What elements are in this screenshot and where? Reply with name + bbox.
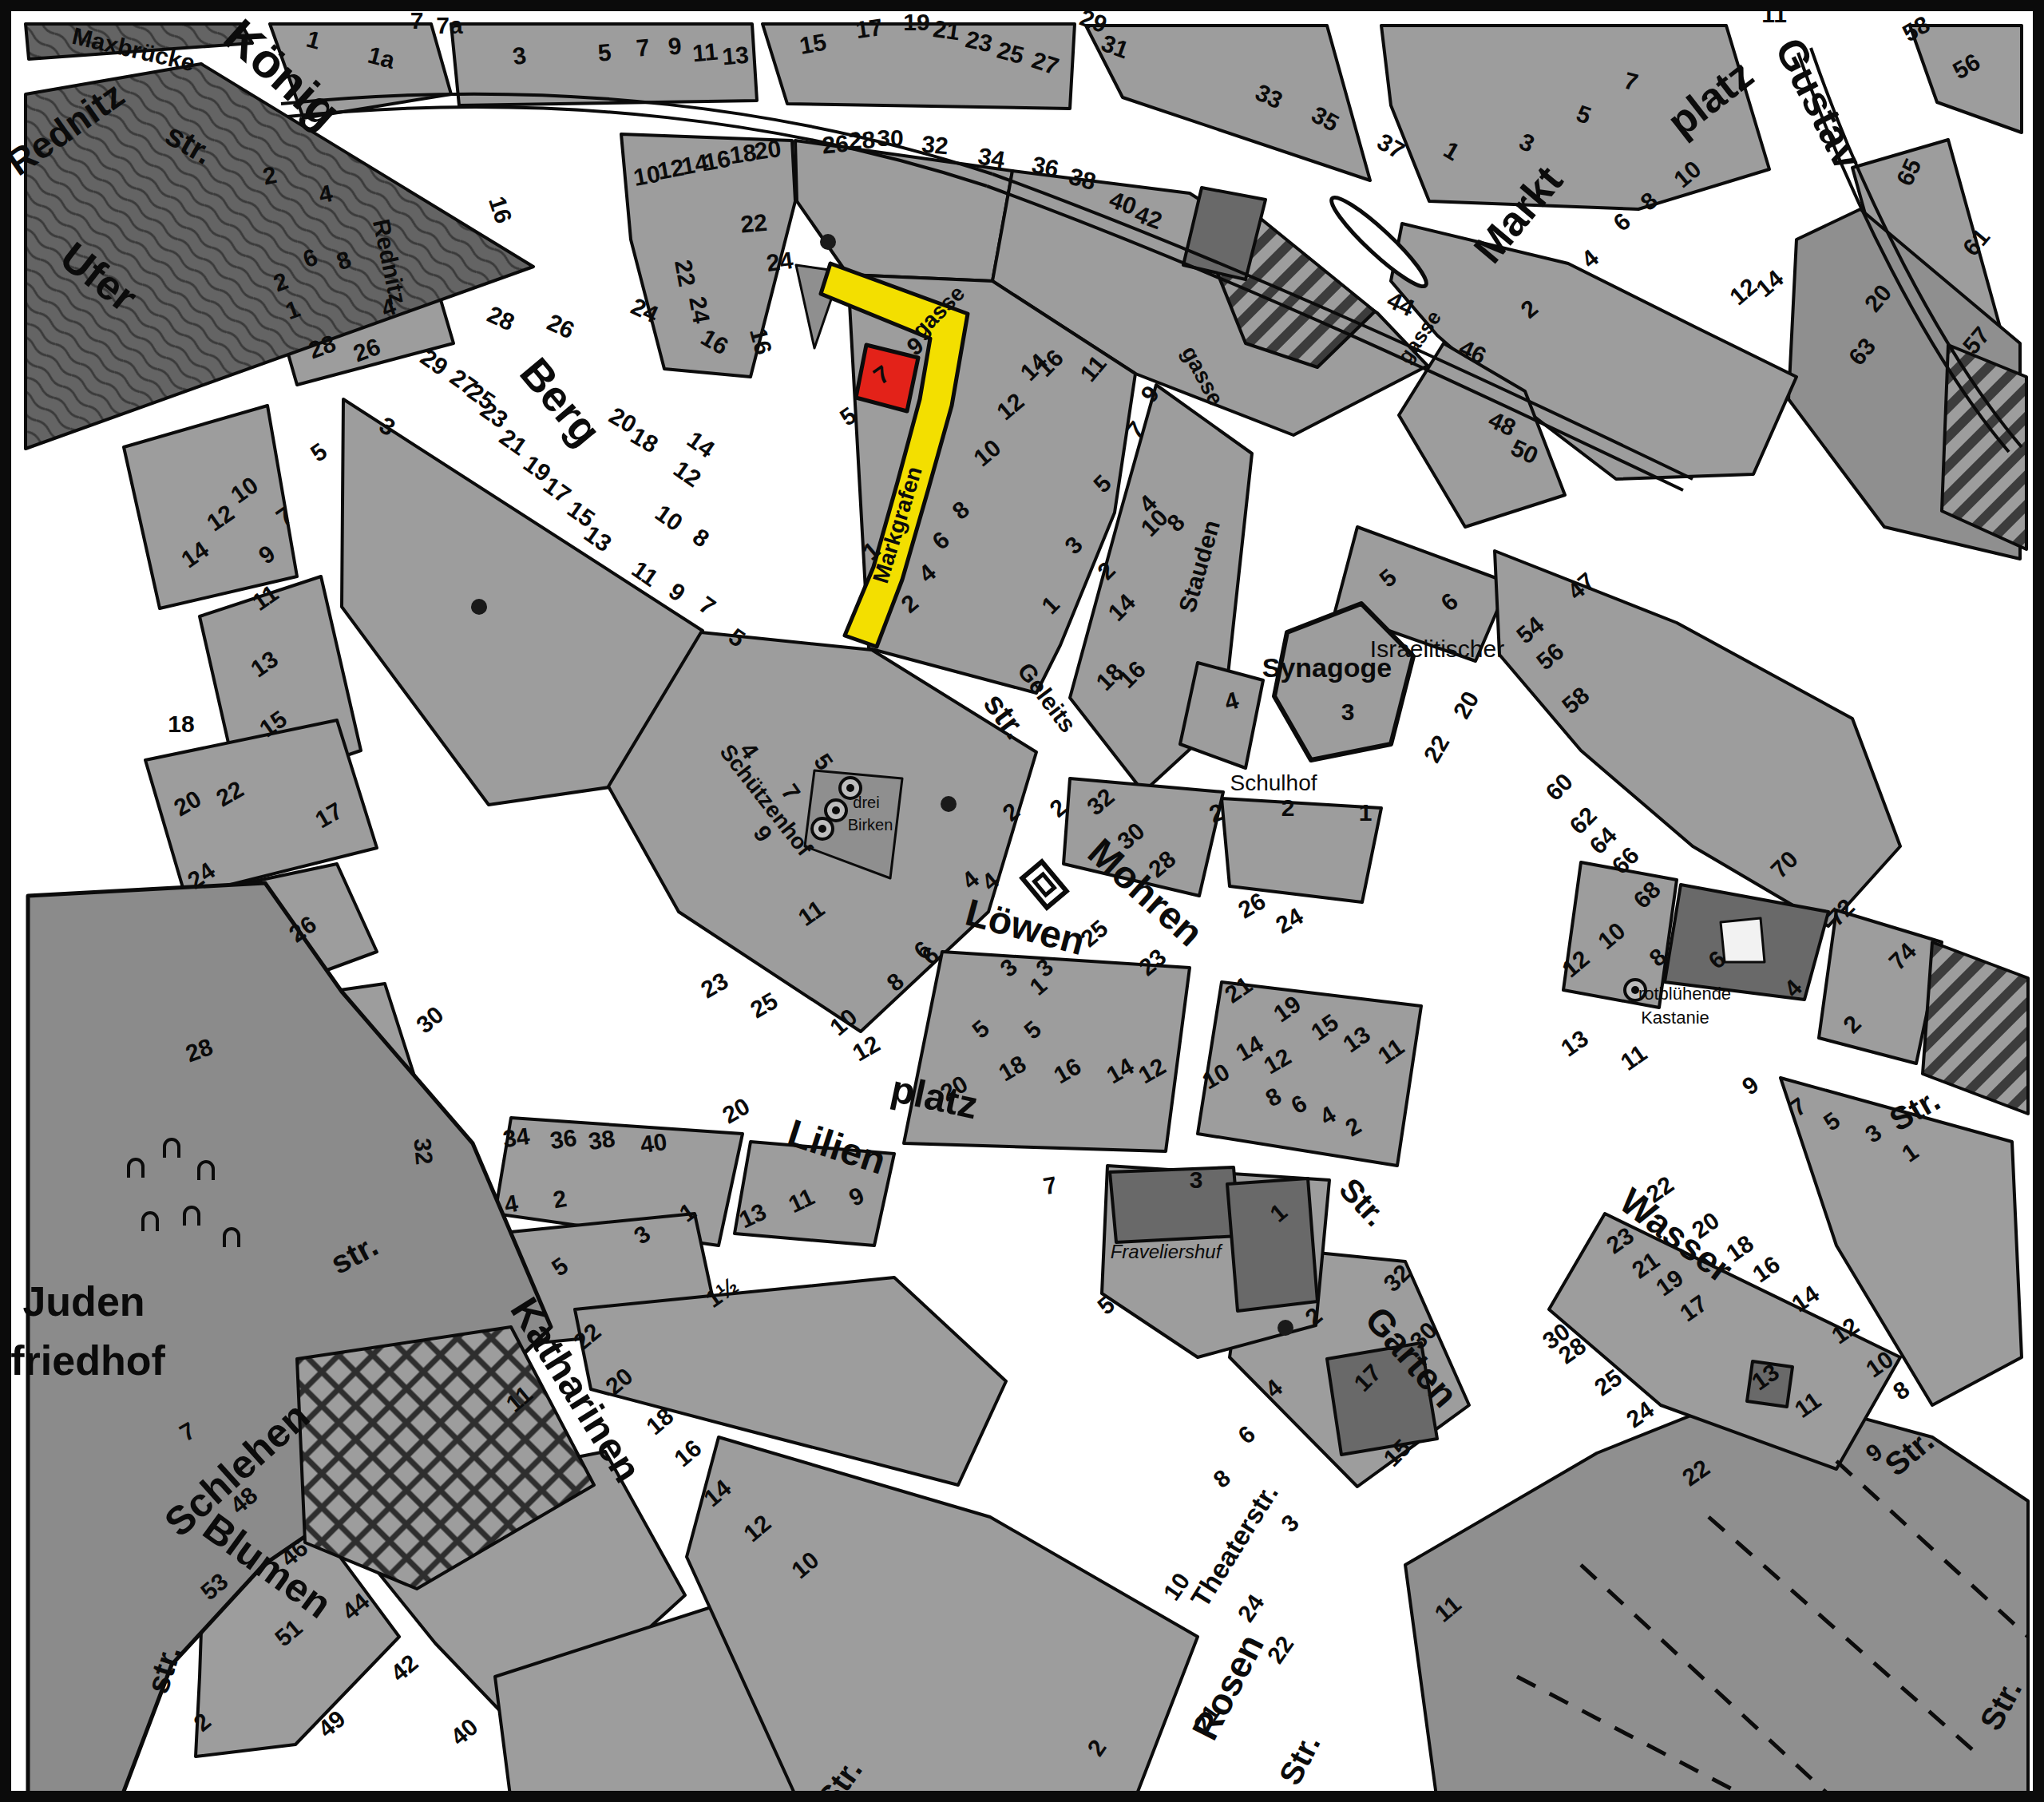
house-number: 16 [669, 1435, 707, 1472]
house-number: 8 [688, 523, 715, 552]
street-label: Theaterstr. [1185, 1479, 1284, 1613]
house-number: 22 [1262, 1631, 1298, 1668]
house-number: 16 [484, 193, 517, 227]
house-number: 32 [921, 131, 949, 160]
house-number: 13 [721, 42, 750, 70]
house-number: 26 [543, 308, 578, 343]
house-number: 38 [587, 1125, 617, 1154]
street-label: rotblühende [1638, 984, 1731, 1004]
house-number: 18 [168, 711, 194, 737]
city-block [1086, 26, 1370, 180]
tree-icon [820, 234, 836, 250]
house-number: 22 [670, 258, 700, 289]
dark-building [1227, 1178, 1317, 1311]
house-number: 23 [963, 26, 995, 57]
street-label: friedhof [10, 1337, 165, 1384]
house-number: 24 [1232, 1590, 1269, 1627]
house-number: 24 [684, 295, 715, 326]
house-number: 9 [667, 32, 683, 59]
tree-core [818, 825, 826, 833]
house-number: 36 [1029, 151, 1061, 182]
tree-icon [941, 796, 957, 812]
tree-core [832, 806, 840, 814]
house-number: 30 [411, 1001, 449, 1039]
house-number: 5 [596, 38, 612, 65]
city-block [124, 406, 297, 608]
house-number: 10 [651, 499, 687, 536]
house-number: 28 [848, 126, 876, 154]
street-label: Kastanie [1641, 1008, 1709, 1028]
street-label: Schulhof [1230, 770, 1317, 795]
house-number: 36 [549, 1124, 579, 1154]
house-number: 20 [718, 1092, 754, 1128]
house-number: 7 [695, 591, 721, 620]
street-label: Fraveliershuf [1111, 1241, 1223, 1262]
house-number: 60 [1540, 768, 1578, 806]
house-number: 22 [1418, 731, 1454, 766]
house-number: 40 [446, 1713, 483, 1751]
street-label: Str. [1333, 1171, 1393, 1233]
house-number: 9 [1737, 1071, 1764, 1100]
tree-core [1277, 1320, 1293, 1336]
dark-building [1110, 1167, 1239, 1242]
tombstone-icon [184, 1207, 199, 1226]
house-number: 3 [1190, 1166, 1203, 1193]
tree-core [820, 234, 836, 250]
tree-icon [812, 818, 833, 839]
house-number: 22 [739, 209, 768, 238]
tree-icon [471, 599, 487, 615]
house-number: 26 [821, 130, 850, 159]
city-block [1819, 910, 1942, 1063]
house-number: 11 [1616, 1040, 1652, 1075]
house-number: 23 [696, 967, 732, 1003]
city-block [1222, 798, 1381, 902]
street-label: Gustav [1766, 30, 1872, 176]
house-number: 40 [639, 1128, 669, 1158]
house-number: 12 [848, 1030, 884, 1066]
house-number: 16 [1748, 1250, 1785, 1287]
street-label: Löwen [961, 891, 1090, 964]
city-block [1495, 551, 1900, 926]
house-number: 34 [501, 1123, 532, 1152]
street-label: Israelitischer [1370, 636, 1504, 662]
house-number: 12 [669, 455, 706, 492]
tombstone-icon [164, 1139, 179, 1158]
tree-icon [826, 800, 846, 821]
street-label: Birken [848, 816, 893, 834]
house-number: 42 [386, 1650, 423, 1687]
courtyard-cutout [1721, 918, 1765, 962]
tombstone-icon [143, 1213, 157, 1231]
city-map: Historischer Stadtplan mit markierter Ma… [0, 0, 2044, 1802]
house-number: 8 [1888, 1376, 1915, 1405]
house-number: 30 [877, 125, 903, 151]
house-number: 9 [664, 577, 691, 607]
house-number: 32 [410, 1137, 438, 1166]
house-number: 5 [306, 438, 332, 467]
tombstone-icon [129, 1159, 143, 1178]
house-number: 20 [753, 135, 783, 164]
house-number: 19 [903, 9, 929, 35]
house-number: 6 [1233, 1420, 1260, 1449]
house-number: 24 [1622, 1396, 1659, 1432]
house-number: 2 [1281, 794, 1295, 821]
monument-symbol [1022, 861, 1066, 907]
tree-icon [1277, 1320, 1293, 1336]
house-number: 7 [635, 34, 651, 61]
tree-core [941, 796, 957, 812]
house-number: 16 [702, 145, 733, 176]
house-number: 1 [1359, 799, 1373, 826]
city-block [1198, 982, 1421, 1166]
street-label: Str. [1272, 1729, 1326, 1790]
house-number: 17 [854, 14, 885, 43]
house-number: 11 [691, 38, 719, 67]
hatched-building [1923, 942, 2028, 1114]
house-number: 34 [976, 143, 1008, 173]
map-canvas[interactable]: MaxbrückeRednitzKönigstr.UferRednitzBerg… [0, 0, 2044, 1802]
street-label: Juden [22, 1278, 145, 1325]
house-number: 7a [436, 12, 463, 38]
house-number: 26 [1234, 887, 1270, 923]
house-number: 3 [1276, 1509, 1304, 1537]
house-number: 24 [1271, 902, 1308, 938]
tombstone-icon [224, 1229, 239, 1247]
house-number: 6 [1608, 208, 1635, 236]
house-number: 15 [798, 29, 829, 59]
tree-core [846, 784, 854, 792]
house-number: 28 [483, 300, 518, 335]
house-number: 20 [1448, 687, 1483, 723]
house-number: 13 [1556, 1024, 1593, 1061]
street-label: 3 [1341, 699, 1355, 725]
tree-core [471, 599, 487, 615]
house-number: 21 [932, 15, 962, 45]
tombstone-icon [199, 1162, 213, 1180]
house-number: 25 [746, 987, 782, 1023]
house-number: 8 [1208, 1464, 1235, 1493]
house-number: 24 [765, 247, 795, 276]
street-label: drei [853, 794, 879, 811]
house-number: 7 [1041, 1171, 1059, 1199]
